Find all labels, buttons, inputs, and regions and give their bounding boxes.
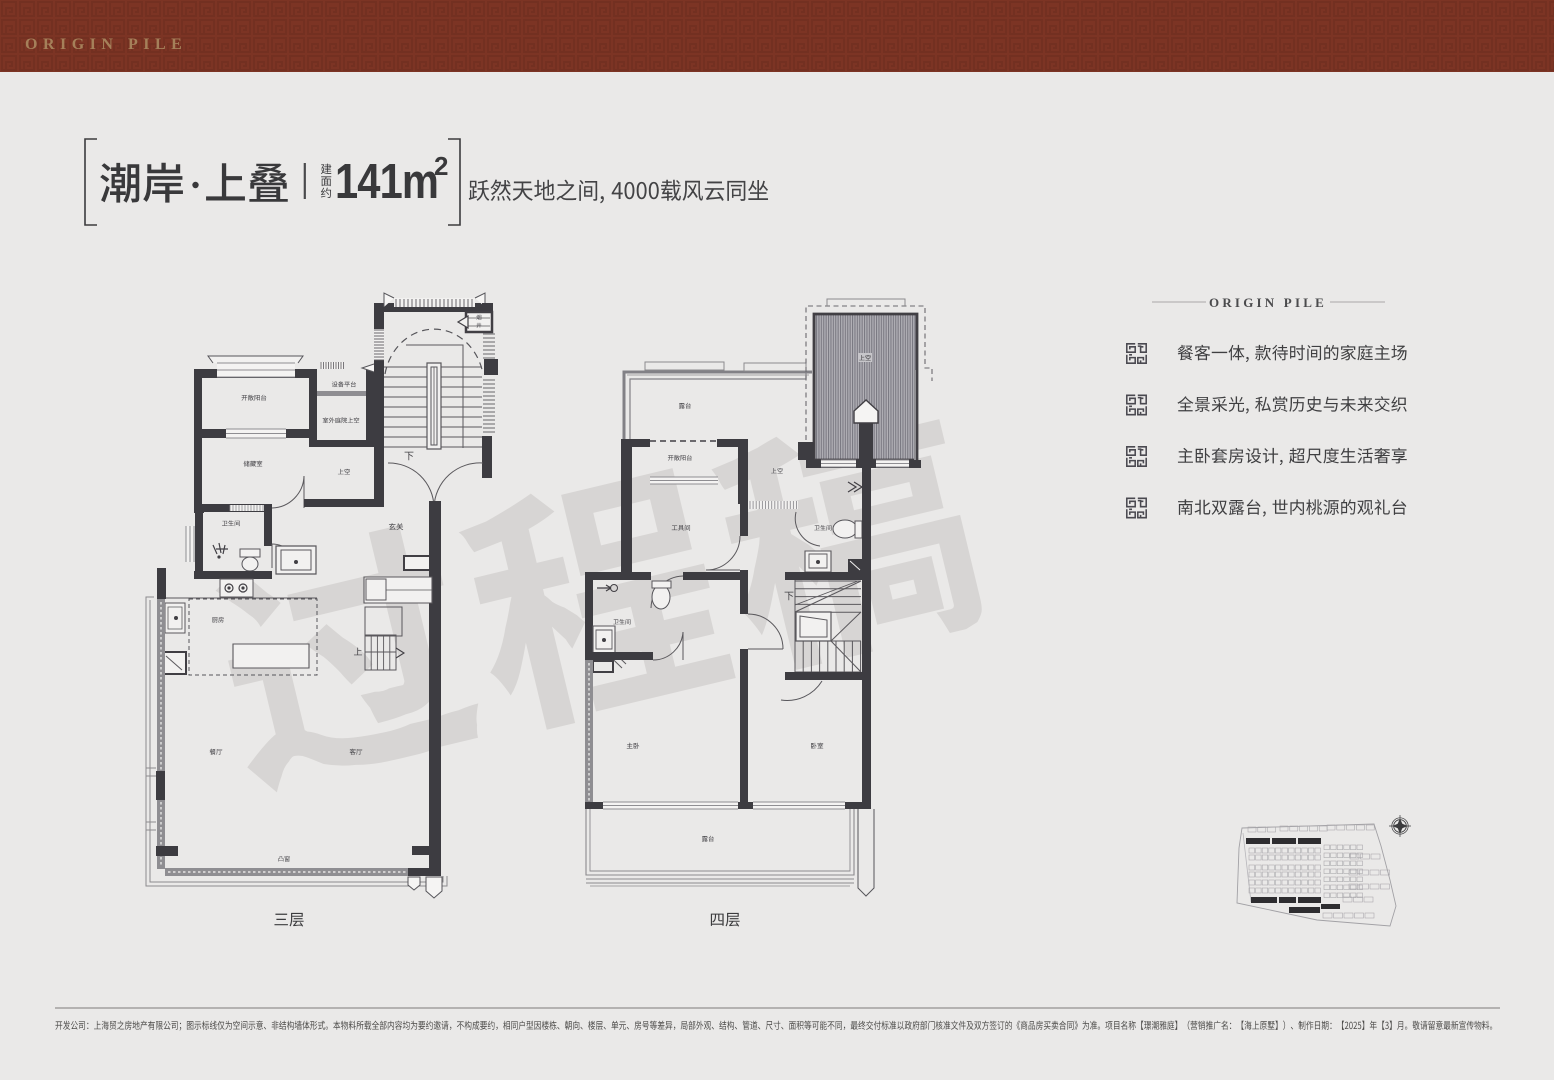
svg-text:2: 2 [434,151,448,181]
svg-text:ORIGIN PILE: ORIGIN PILE [25,36,187,53]
svg-text:141m: 141m [335,154,438,209]
svg-text:ORIGIN PILE: ORIGIN PILE [1209,295,1327,310]
